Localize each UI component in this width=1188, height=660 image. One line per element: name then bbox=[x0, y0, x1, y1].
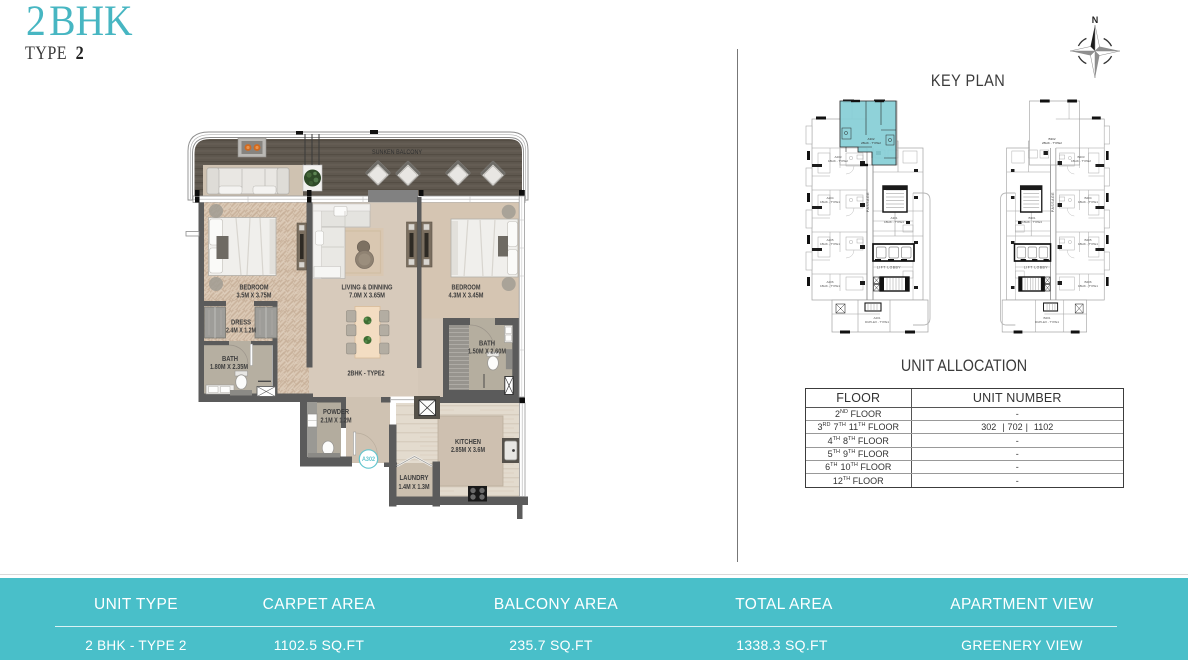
svg-text:1BHK - TYPE3: 1BHK - TYPE3 bbox=[884, 220, 904, 224]
svg-text:2.1M X 1.2M: 2.1M X 1.2M bbox=[321, 415, 352, 424]
svg-text:1BHK - TYPE2: 1BHK - TYPE2 bbox=[828, 159, 848, 163]
svg-text:1BHK - TYPE2: 1BHK - TYPE2 bbox=[1071, 159, 1091, 163]
svg-text:1BHK - TYPE1: 1BHK - TYPE1 bbox=[1078, 242, 1098, 246]
svg-text:N: N bbox=[1092, 15, 1099, 25]
svg-text:2BHK - TYPE2: 2BHK - TYPE2 bbox=[861, 141, 881, 145]
svg-text:1.50M X 2.60M: 1.50M X 2.60M bbox=[468, 346, 506, 355]
svg-text:PASSAGE: PASSAGE bbox=[1051, 192, 1055, 212]
svg-text:1BHK - TYPE3: 1BHK - TYPE3 bbox=[1022, 220, 1042, 224]
svg-text:SUNKEN BALCONY: SUNKEN BALCONY bbox=[372, 149, 423, 156]
svg-text:2.85M X 3.6M: 2.85M X 3.6M bbox=[451, 445, 485, 454]
svg-text:DUPLEX - TYPE1: DUPLEX - TYPE1 bbox=[1035, 320, 1059, 324]
svg-text:DUPLEX - TYPE1: DUPLEX - TYPE1 bbox=[865, 320, 889, 324]
svg-text:1.80M X 2.35M: 1.80M X 2.35M bbox=[210, 362, 248, 371]
svg-text:2.4M X 1.2M: 2.4M X 1.2M bbox=[226, 325, 256, 334]
svg-text:2BHK - TYPE2: 2BHK - TYPE2 bbox=[348, 369, 385, 378]
svg-text:3.5M X 3.75M: 3.5M X 3.75M bbox=[237, 290, 272, 299]
svg-text:1BHK - TYPE1: 1BHK - TYPE1 bbox=[820, 284, 840, 288]
svg-text:A302: A302 bbox=[362, 457, 376, 463]
svg-text:LIFT LOBBY: LIFT LOBBY bbox=[877, 266, 901, 270]
svg-text:1.4M X 1.3M: 1.4M X 1.3M bbox=[399, 482, 430, 491]
svg-text:LIFT LOBBY: LIFT LOBBY bbox=[1024, 266, 1048, 270]
svg-text:2BHK - TYPE2: 2BHK - TYPE2 bbox=[1042, 141, 1062, 145]
svg-text:4.3M X 3.45M: 4.3M X 3.45M bbox=[449, 290, 484, 299]
svg-text:1BHK - TYPE1: 1BHK - TYPE1 bbox=[820, 242, 840, 246]
svg-text:1BHK - TYPE1: 1BHK - TYPE1 bbox=[1078, 200, 1098, 204]
svg-text:PASSAGE: PASSAGE bbox=[866, 192, 870, 212]
svg-text:7.0M X 3.65M: 7.0M X 3.65M bbox=[349, 290, 385, 299]
svg-text:1BHK - TYPE1: 1BHK - TYPE1 bbox=[1078, 284, 1098, 288]
svg-text:LAUNDRY: LAUNDRY bbox=[400, 473, 429, 482]
svg-text:1BHK - TYPE1: 1BHK - TYPE1 bbox=[820, 200, 840, 204]
